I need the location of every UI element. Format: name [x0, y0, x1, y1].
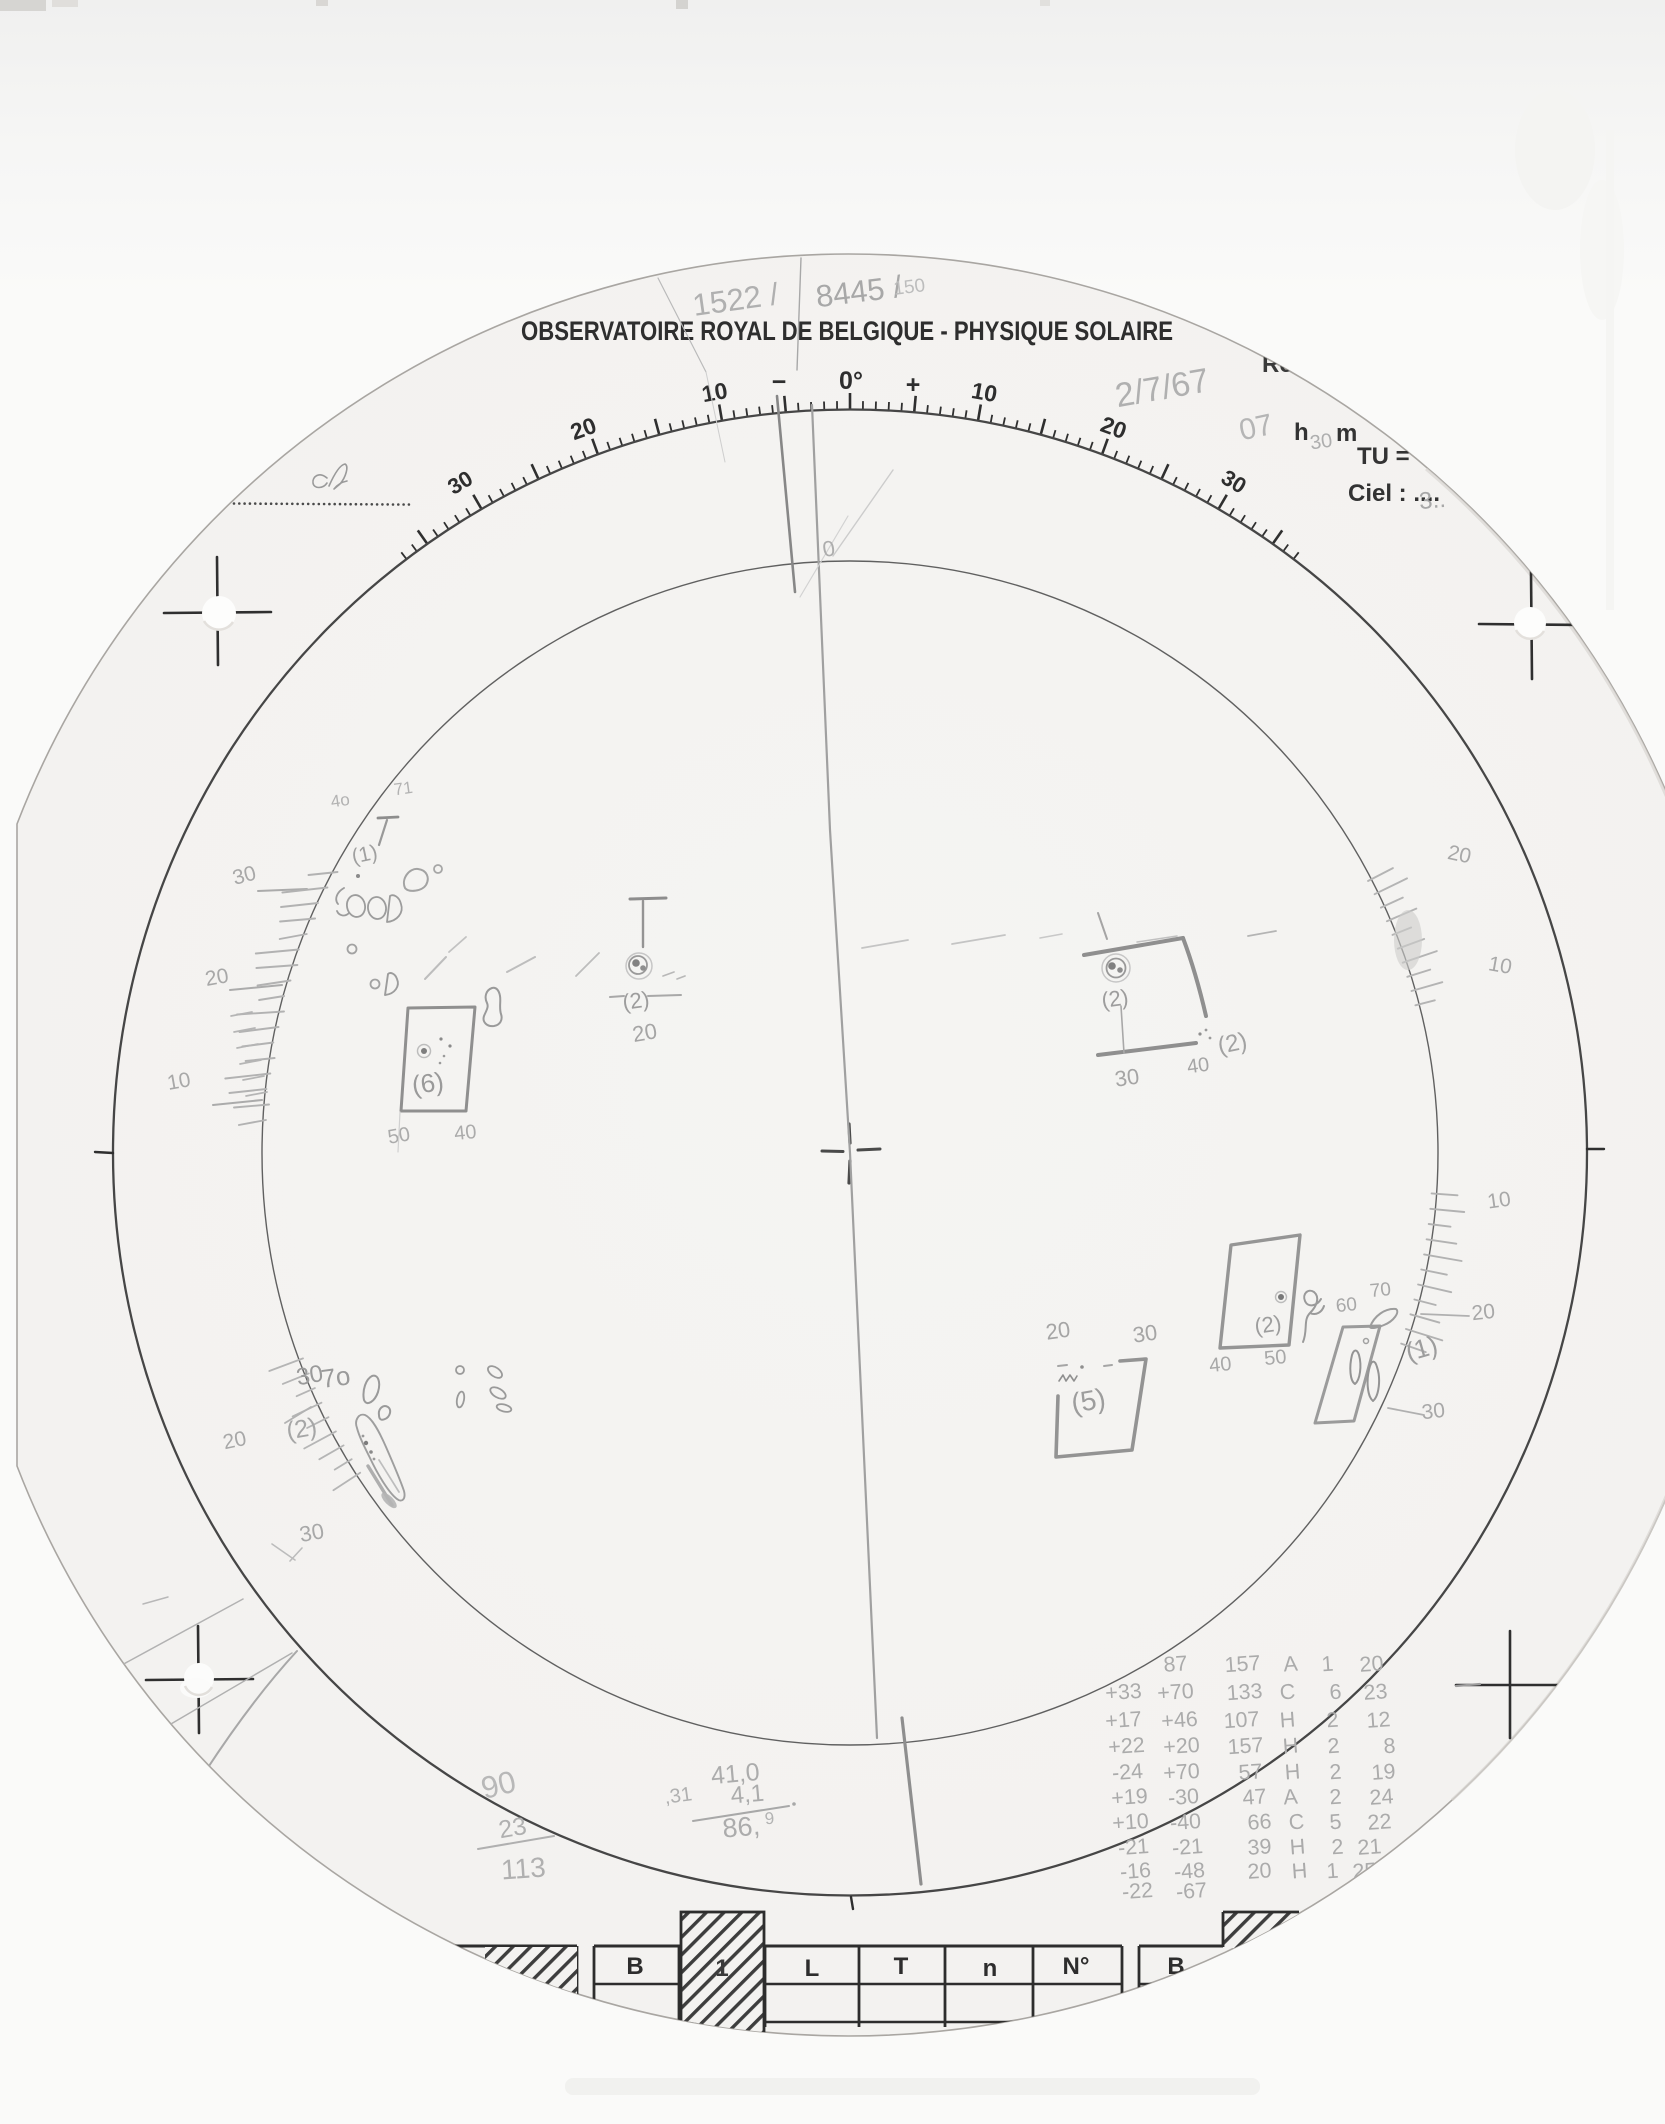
svg-text:+: +	[906, 371, 921, 399]
svg-text:-21: -21	[1171, 1834, 1204, 1860]
svg-text:24: 24	[1369, 1784, 1395, 1810]
svg-text:71: 71	[393, 778, 414, 799]
svg-text:8: 8	[1383, 1734, 1397, 1759]
svg-text:10: 10	[165, 1068, 192, 1095]
svg-text:2: 2	[1331, 1835, 1345, 1860]
svg-text:20: 20	[1044, 1316, 1072, 1344]
svg-text:+20: +20	[1162, 1733, 1200, 1759]
svg-text:60: 60	[1335, 1294, 1358, 1317]
svg-text:4,1: 4,1	[730, 1780, 766, 1810]
svg-text:H: H	[1279, 1708, 1296, 1733]
svg-text:20: 20	[1359, 1651, 1385, 1677]
svg-text:30: 30	[297, 1518, 325, 1547]
svg-text:+19: +19	[1110, 1784, 1148, 1810]
svg-text:-21: -21	[1117, 1834, 1150, 1860]
svg-text:30: 30	[1309, 430, 1334, 455]
svg-text:20: 20	[221, 1427, 249, 1454]
svg-text:C: C	[1279, 1680, 1296, 1705]
svg-text:40: 40	[453, 1121, 477, 1145]
svg-text:2: 2	[1329, 1785, 1343, 1810]
svg-text:5: 5	[1329, 1810, 1343, 1835]
svg-text:(2): (2)	[284, 1413, 319, 1446]
svg-text:50: 50	[1263, 1346, 1287, 1370]
svg-text:m: m	[1336, 420, 1357, 447]
svg-text:A: A	[1283, 1652, 1300, 1677]
svg-text:-40: -40	[1169, 1809, 1202, 1835]
svg-text:40: 40	[1186, 1054, 1211, 1079]
svg-text:1: 1	[1321, 1652, 1335, 1677]
svg-text:B: B	[626, 1953, 643, 1980]
svg-text:+22: +22	[1107, 1733, 1145, 1759]
svg-text:T: T	[894, 1953, 909, 1980]
svg-text:20: 20	[1247, 1858, 1273, 1884]
svg-text:30: 30	[1131, 1319, 1159, 1347]
svg-text:2: 2	[1327, 1734, 1341, 1759]
svg-text:23: 23	[1363, 1679, 1389, 1705]
svg-text:TU =: TU =	[1357, 443, 1410, 470]
svg-text:9: 9	[764, 1809, 775, 1829]
svg-text:(2): (2)	[1100, 984, 1130, 1012]
svg-text:2: 2	[1326, 1708, 1340, 1733]
svg-text:87: 87	[1163, 1651, 1189, 1677]
svg-text:10: 10	[970, 377, 1000, 407]
svg-text:157: 157	[1224, 1651, 1261, 1677]
svg-text:66: 66	[1247, 1809, 1273, 1835]
svg-text:H: H	[1284, 1760, 1301, 1785]
svg-text:-22: -22	[1121, 1878, 1154, 1904]
svg-text:57: 57	[1238, 1759, 1264, 1785]
svg-text:0°: 0°	[839, 367, 863, 395]
svg-text:7o: 7o	[319, 1360, 352, 1394]
svg-text:-67: -67	[1175, 1878, 1208, 1904]
svg-text:+17: +17	[1104, 1707, 1142, 1733]
svg-text:L: L	[805, 1955, 820, 1982]
svg-text:-30: -30	[1167, 1784, 1200, 1810]
svg-text:70: 70	[1369, 1279, 1392, 1302]
svg-text:(2): (2)	[621, 986, 651, 1014]
svg-text:12: 12	[1366, 1707, 1392, 1733]
svg-text:107: 107	[1223, 1707, 1260, 1733]
svg-text:OBSERVATOIRE ROYAL DE BELGIQUE: OBSERVATOIRE ROYAL DE BELGIQUE - PHYSIQU…	[521, 316, 1173, 346]
svg-text:23: 23	[496, 1812, 528, 1844]
svg-text:+70: +70	[1156, 1679, 1194, 1705]
svg-text:(5): (5)	[1069, 1382, 1108, 1418]
svg-text:19: 19	[1371, 1759, 1397, 1785]
svg-text:C: C	[1288, 1810, 1305, 1835]
svg-text:10: 10	[700, 377, 730, 407]
svg-text:30: 30	[1421, 1399, 1447, 1424]
svg-text:6: 6	[1329, 1680, 1343, 1705]
svg-text:(2): (2)	[1253, 1310, 1283, 1338]
svg-text:86,: 86,	[721, 1810, 761, 1843]
svg-text:2: 2	[1329, 1760, 1343, 1785]
svg-text:-24: -24	[1111, 1759, 1144, 1785]
svg-text:H: H	[1282, 1734, 1299, 1759]
svg-text:20: 20	[1471, 1300, 1497, 1325]
svg-text:n: n	[983, 1955, 998, 1982]
svg-text:07: 07	[1236, 408, 1276, 447]
svg-text:1: 1	[715, 1955, 728, 1982]
svg-text:20: 20	[1446, 841, 1474, 868]
svg-text:21: 21	[1357, 1834, 1383, 1860]
svg-text:(6): (6)	[410, 1066, 446, 1100]
svg-text:113: 113	[500, 1852, 547, 1886]
svg-text:10: 10	[1487, 952, 1514, 979]
svg-text:10: 10	[1486, 1188, 1512, 1214]
svg-text:+33: +33	[1104, 1679, 1142, 1705]
svg-text:+46: +46	[1160, 1707, 1198, 1733]
svg-text:150: 150	[892, 275, 926, 300]
svg-text:1: 1	[1326, 1859, 1340, 1884]
svg-text:22: 22	[1367, 1809, 1393, 1835]
svg-text:20: 20	[203, 964, 230, 991]
svg-text:4o: 4o	[330, 790, 351, 811]
svg-text:3..: 3..	[1418, 486, 1447, 515]
svg-text:−: −	[772, 368, 787, 396]
svg-text:157: 157	[1227, 1733, 1264, 1759]
svg-text:47: 47	[1242, 1784, 1268, 1810]
svg-text:40: 40	[1208, 1353, 1232, 1377]
svg-text:h: h	[1294, 419, 1309, 446]
svg-text:30: 30	[1113, 1063, 1141, 1091]
svg-text:20: 20	[630, 1018, 658, 1047]
svg-text:133: 133	[1226, 1679, 1264, 1705]
svg-text:H: H	[1291, 1859, 1308, 1884]
svg-text:39: 39	[1247, 1834, 1273, 1860]
svg-text:,31: ,31	[663, 1783, 694, 1809]
svg-text:A: A	[1283, 1785, 1300, 1810]
svg-text:+70: +70	[1162, 1759, 1200, 1785]
svg-text:+10: +10	[1111, 1809, 1149, 1835]
svg-text:H: H	[1289, 1835, 1306, 1860]
svg-text:N°: N°	[1063, 1953, 1090, 1980]
